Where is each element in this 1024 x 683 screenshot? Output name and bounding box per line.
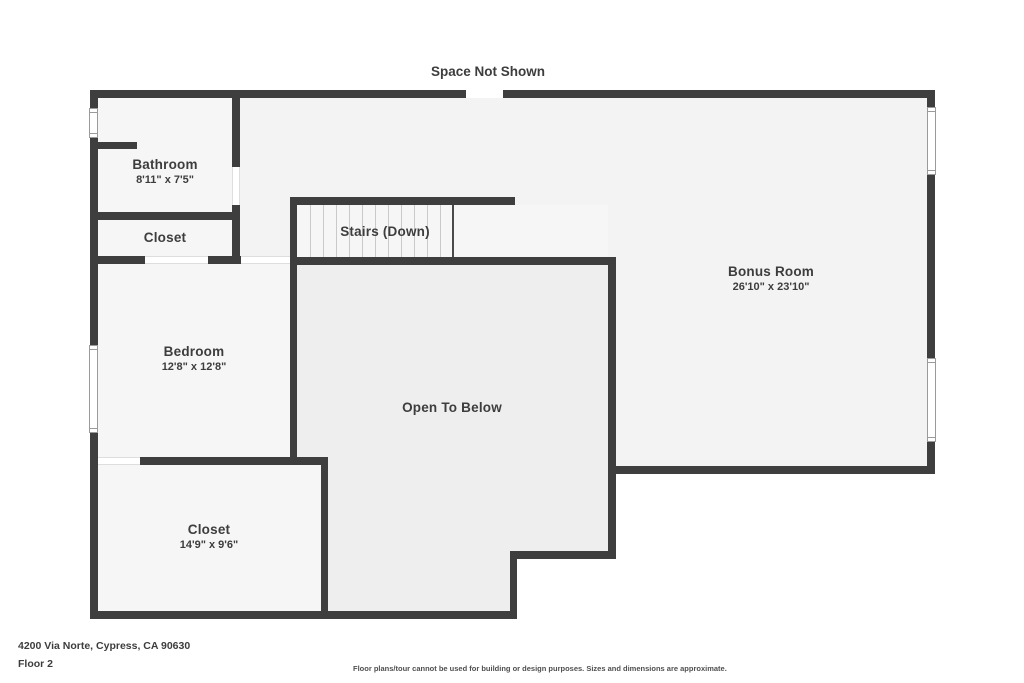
wall-bonus-bottom	[608, 466, 935, 474]
opening-bedroom-closet-door	[98, 457, 140, 465]
label-closet-top: Closet	[90, 230, 240, 246]
wall-bathroom-stub	[90, 142, 137, 149]
wall-open-below-step-v	[510, 551, 517, 619]
wall-bathroom-right-upper	[232, 90, 240, 167]
wall-outer-top	[90, 90, 935, 98]
floor-open-to-below-lower	[328, 457, 510, 611]
label-bathroom: Bathroom 8'11" x 7'5"	[90, 157, 240, 186]
room-name: Closet	[134, 522, 284, 538]
room-dims: 26'10" x 23'10"	[671, 281, 871, 294]
window-right-lower	[927, 358, 936, 442]
wall-stairs-top	[291, 197, 515, 205]
room-dims: 12'8" x 12'8"	[119, 361, 269, 374]
label-closet-bottom: Closet 14'9" x 9'6"	[134, 522, 284, 551]
room-dims: 8'11" x 7'5"	[90, 174, 240, 187]
wall-closet-bottom-b	[208, 256, 241, 264]
opening-hallway	[241, 256, 290, 264]
wall-open-below-step-h	[510, 551, 616, 559]
room-name: Bathroom	[90, 157, 240, 173]
opening-closet-door	[145, 256, 208, 264]
address-text: 4200 Via Norte, Cypress, CA 90630	[18, 640, 190, 652]
room-name: Stairs (Down)	[295, 224, 475, 240]
space-not-shown-label: Space Not Shown	[363, 64, 613, 79]
opening-top-wall	[466, 90, 503, 98]
room-dims: 14'9" x 9'6"	[134, 539, 284, 552]
disclaimer-text: Floor plans/tour cannot be used for buil…	[353, 664, 727, 673]
window-right-upper	[927, 107, 936, 175]
room-name: Closet	[90, 230, 240, 246]
wall-bathroom-bottom	[90, 212, 239, 220]
label-bonus-room: Bonus Room 26'10" x 23'10"	[671, 264, 871, 293]
label-open-to-below: Open To Below	[362, 400, 542, 416]
label-bedroom: Bedroom 12'8" x 12'8"	[119, 344, 269, 373]
wall-closet-bottom-a	[90, 256, 145, 264]
wall-open-below-right	[608, 257, 616, 559]
window-left-bedroom	[89, 345, 98, 433]
window-left-upper	[89, 108, 98, 138]
wall-outer-bottom	[90, 611, 517, 619]
room-name: Open To Below	[362, 400, 542, 416]
wall-bedroom-bottom	[140, 457, 327, 465]
floor-number-text: Floor 2	[18, 658, 53, 670]
label-stairs: Stairs (Down)	[295, 224, 475, 240]
wall-open-below-top	[290, 257, 615, 265]
wall-closet-bottom-right	[321, 457, 328, 619]
room-name: Bonus Room	[671, 264, 871, 280]
floor-plan: Space Not Shown	[0, 0, 1024, 683]
room-name: Bedroom	[119, 344, 269, 360]
